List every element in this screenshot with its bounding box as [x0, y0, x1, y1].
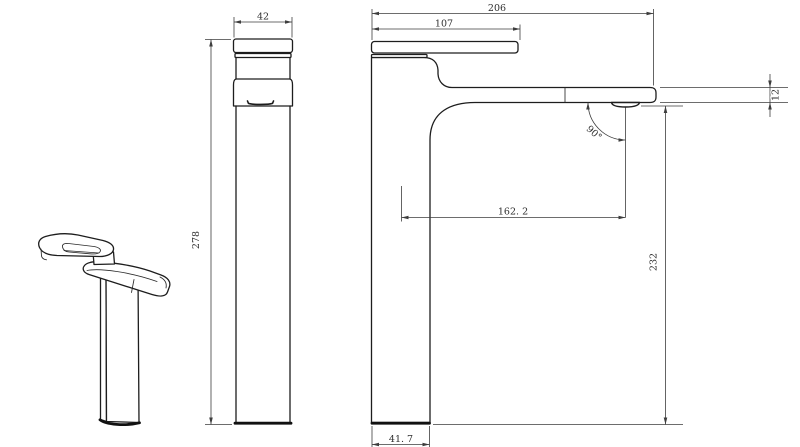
drawing-canvas: 42 278 206 107 12	[0, 0, 800, 447]
arrowhead	[586, 103, 590, 110]
handle-lever	[39, 234, 114, 257]
arrowhead	[234, 20, 241, 24]
outlet-height-label: 232	[649, 253, 660, 271]
arrowhead	[664, 106, 668, 113]
cartridge-collar	[235, 54, 291, 58]
spout-reach-label: 162. 2	[498, 207, 528, 218]
handle-length-label: 107	[435, 19, 453, 30]
side-view: 206 107 12 90° 162. 2 232	[372, 3, 789, 447]
upper-body	[236, 58, 290, 80]
arrowhead	[209, 418, 213, 425]
arrowhead	[513, 27, 520, 31]
arrowhead	[619, 216, 626, 220]
arrowhead	[768, 103, 772, 110]
arrowhead	[372, 27, 379, 31]
arrowhead	[647, 12, 654, 16]
front-view: 42 278	[191, 12, 293, 425]
base-width-label: 41. 7	[389, 434, 413, 445]
arrowhead	[209, 40, 213, 47]
arrowhead	[619, 138, 626, 142]
cartridge-collar-side	[372, 55, 428, 58]
arrowhead	[768, 81, 772, 88]
aerator-front	[248, 101, 274, 104]
column-outline	[236, 106, 290, 423]
arrowhead	[285, 20, 292, 24]
height-dimension-label: 278	[191, 231, 202, 249]
arrowhead	[372, 12, 379, 16]
technical-drawing: 42 278 206 107 12	[0, 0, 800, 447]
isometric-view	[39, 234, 170, 425]
body-outline	[372, 58, 657, 423]
overall-length-label: 206	[488, 3, 506, 14]
spout-thickness-label: 12	[771, 89, 782, 101]
outlet-angle-label: 90°	[584, 124, 604, 143]
aerator-side	[612, 103, 640, 108]
width-dimension-label: 42	[257, 12, 269, 23]
arrowhead	[372, 443, 379, 447]
handle-cap	[234, 39, 293, 53]
spout-front-section	[234, 79, 293, 106]
arrowhead	[423, 443, 430, 447]
handle-lever-side	[372, 42, 519, 54]
arrowhead	[664, 418, 668, 425]
